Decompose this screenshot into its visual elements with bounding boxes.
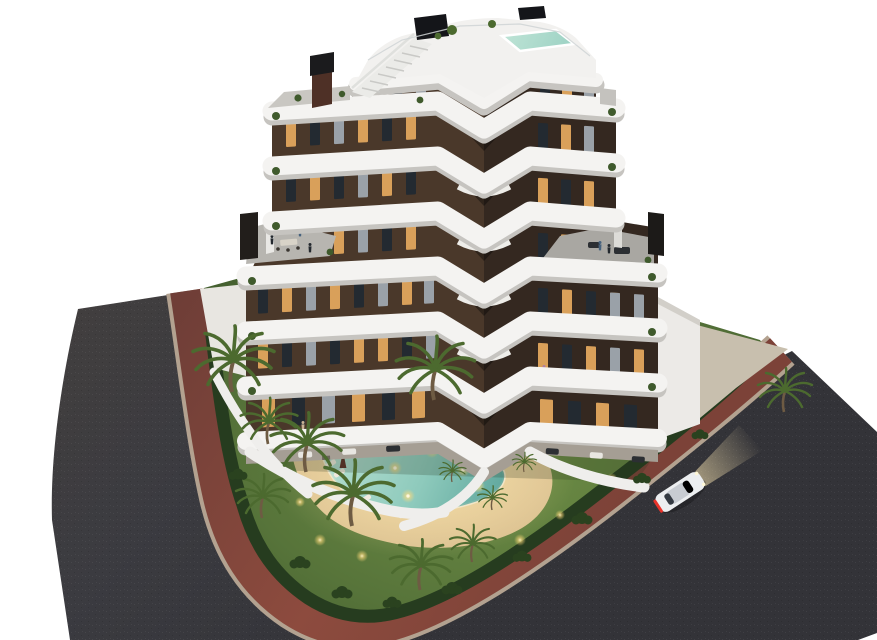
terrace-sofa xyxy=(614,247,630,254)
render-canvas xyxy=(0,0,877,640)
roof-screen-2 xyxy=(518,6,546,20)
chimney-right xyxy=(648,212,664,256)
penthouse-terrace-right xyxy=(600,88,616,106)
brick-chimney-cap xyxy=(310,52,334,76)
roof-plant xyxy=(447,25,457,35)
chimney-left xyxy=(240,212,258,260)
